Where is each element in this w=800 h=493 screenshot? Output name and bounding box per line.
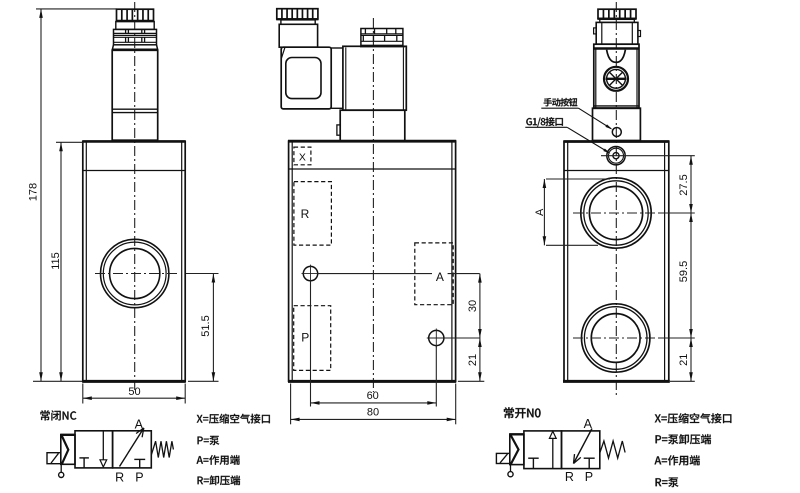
svg-text:R: R [565,470,574,484]
svg-text:60: 60 [367,390,379,402]
svg-text:R: R [115,470,124,484]
svg-text:51.5: 51.5 [200,315,212,336]
svg-text:27.5: 27.5 [678,174,690,195]
svg-text:59.5: 59.5 [678,261,690,282]
svg-text:30: 30 [467,300,479,312]
svg-text:X: X [299,151,306,163]
svg-text:21: 21 [467,354,479,366]
svg-text:P: P [301,330,309,344]
svg-text:178: 178 [27,183,39,201]
svg-text:P: P [585,470,593,484]
svg-text:R: R [301,207,310,221]
svg-text:P: P [135,470,143,484]
svg-text:A: A [534,208,546,216]
svg-text:21: 21 [678,354,690,366]
svg-text:115: 115 [50,252,62,270]
svg-text:80: 80 [367,407,379,419]
svg-text:A: A [436,270,444,284]
svg-text:50: 50 [128,386,140,398]
